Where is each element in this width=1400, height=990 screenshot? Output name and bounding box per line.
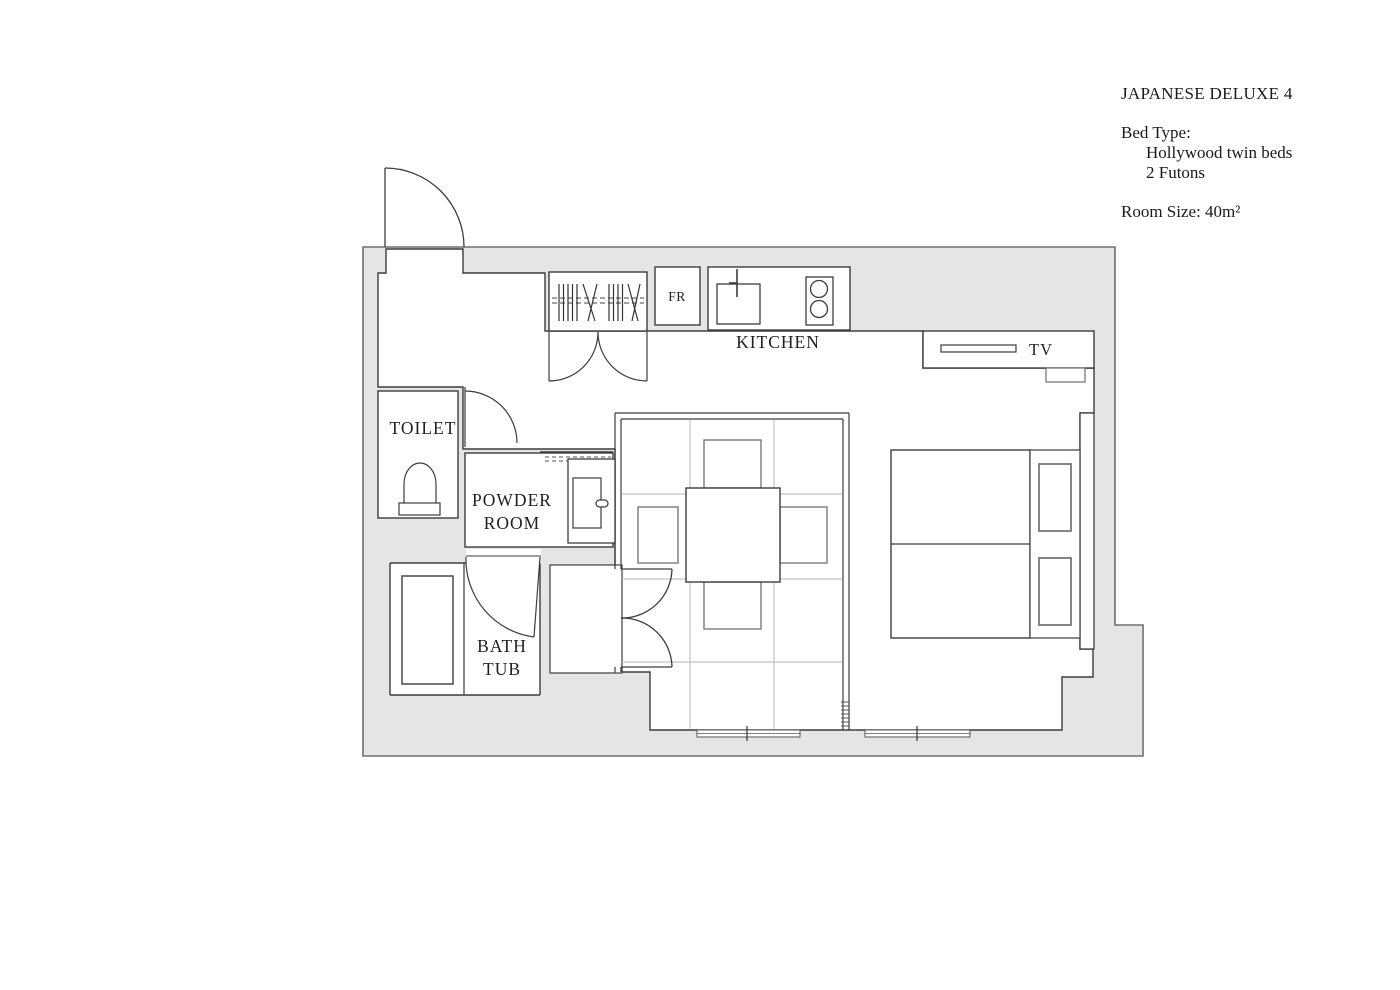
tv-label: TV (1029, 340, 1053, 359)
table (686, 488, 780, 582)
tv-set (941, 345, 1016, 352)
floor-plan-page: FR (0, 0, 1400, 990)
bathtub (402, 576, 453, 684)
kitchen-counter (708, 267, 850, 330)
tv-side-unit (1046, 368, 1085, 382)
room-size: Room Size: 40m² (1121, 202, 1381, 222)
toilet-label: TOILET (390, 418, 457, 438)
bath-landing (550, 565, 622, 673)
tatami-border-hatch (841, 702, 849, 726)
kitchen-label: KITCHEN (736, 332, 820, 352)
powder-room-label-line2: ROOM (484, 513, 541, 533)
chair (638, 507, 678, 563)
bath-label-line2: TUB (483, 659, 521, 679)
toilet-room (378, 391, 458, 518)
bed-type-label: Bed Type: (1121, 123, 1381, 143)
washer-unit (568, 459, 615, 543)
pillow (1039, 464, 1071, 531)
bath-label-line1: BATH (477, 636, 527, 656)
chair (704, 440, 761, 488)
pillow (1039, 558, 1071, 625)
bed-type-item: 2 Futons (1146, 163, 1381, 183)
room-info-block: JAPANESE DELUXE 4 Bed Type: Hollywood tw… (1121, 84, 1381, 222)
chair (704, 582, 761, 629)
fridge: FR (655, 267, 700, 325)
washer-handle (596, 500, 608, 507)
bed-type-item: Hollywood twin beds (1146, 143, 1381, 163)
right-window-strip (1080, 413, 1094, 649)
twin-beds (891, 450, 1080, 638)
room-title: JAPANESE DELUXE 4 (1121, 84, 1381, 104)
fridge-label: FR (668, 289, 686, 304)
powder-room-label-line1: POWDER (472, 490, 552, 510)
entrance-door (385, 168, 464, 247)
chair (780, 507, 827, 563)
